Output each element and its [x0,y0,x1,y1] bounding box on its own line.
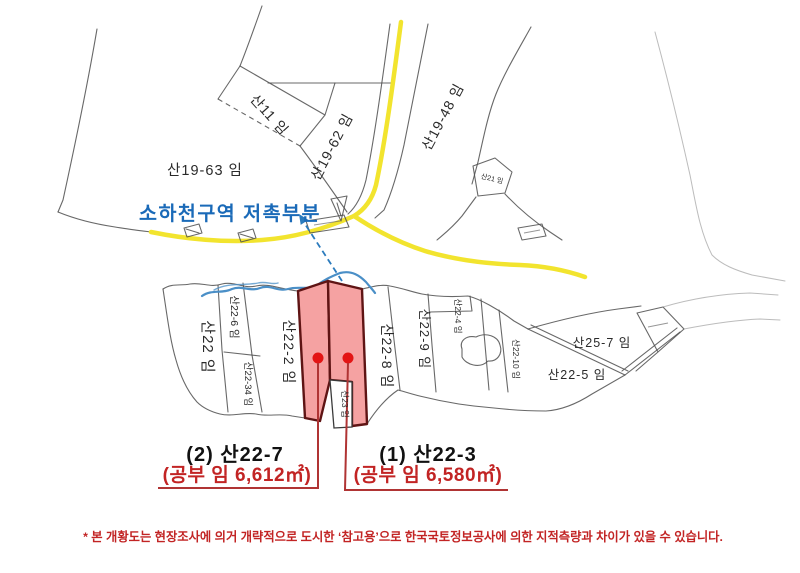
label-san25-7: 산25-7 임 [573,336,632,350]
yellow-road-north [354,22,401,216]
yellow-road [151,22,585,277]
boundary-west-outer [58,29,97,212]
boundary-san19-48-east [472,27,531,184]
label-san19-63: 산19-63 임 [167,162,243,179]
lower-parcel-boundaries [163,283,780,424]
parcel-san22-7-highlight [298,281,330,421]
boundary-below-pentagon-west [437,197,476,240]
illegible-text-marks-east [648,323,668,327]
label-san22-9: 산22-9 임 [417,309,432,370]
cadastral-sketch-map: 소하천구역 저촉부분 산19-63 임 산11 임 산19-62 임 산19-4… [0,0,800,573]
annotation-left-area: (공부 임 6,612㎡) [163,463,312,486]
label-san23: 산23 임 [340,390,350,417]
boundary-san25-7-north [528,306,641,329]
annotation-right-lot: (1) 산22-3 [379,443,476,466]
marker-dot-san22-7 [313,353,324,364]
label-san22-6: 산22-6 임 [228,295,241,338]
house-shape-1 [184,224,202,237]
parcel-san22-4-bottom [430,296,472,312]
label-san22-8: 산22-8 임 [379,324,395,389]
road-east-edge [375,24,428,218]
yellow-road-southeast [354,216,585,277]
footnote: * 본 개황도는 현장조사에 의거 개략적으로 도시한 ‘참고용’으로 한국국토… [83,529,723,544]
label-san22-10: 산22-10 임 [511,339,521,379]
boundary-east-faint-2 [684,319,780,329]
divider-san22-east [218,285,228,412]
annotation-right-area: (공부 임 6,580㎡) [354,463,503,486]
illegible-text-marks-road [524,230,540,233]
divider-through-pond [481,299,489,390]
marker-dot-san22-3 [343,353,354,364]
highlighted-parcels [298,281,367,428]
annotation-left-lot: (2) 산22-7 [186,443,283,466]
label-san19-48: 산19-48 임 [418,80,467,152]
boundary-below-pentagon-east [505,194,562,240]
boundary-east-faint-1 [663,293,778,307]
label-san22-4: 산22-4 임 [453,298,463,333]
boundary-west-foot [58,212,152,232]
stream-zone-label: 소하천구역 저촉부분 [139,203,321,225]
label-san21: 산21 임 [480,171,504,185]
divider-san22-6-34 [224,352,260,356]
label-san22-5: 산22-5 임 [548,368,607,382]
boundary-far-east [655,32,785,281]
label-san19-62: 산19-62 임 [307,110,356,182]
strip-bottom-east [367,375,625,424]
pond-outline [461,335,500,366]
label-san22-34: 산22-34 임 [242,362,254,406]
boundary-san11-upleft [240,6,262,66]
label-san11: 산11 임 [247,91,292,138]
strip-top-east [362,285,528,329]
bottom-annotations: (2) 산22-7 (공부 임 6,612㎡) (1) 산22-3 (공부 임 … [163,443,503,486]
label-san22-2: 산22-2 임 [281,320,297,385]
map-canvas: 소하천구역 저촉부분 산19-63 임 산11 임 산19-62 임 산19-4… [0,0,800,573]
label-san22: 산22 임 [199,320,216,373]
